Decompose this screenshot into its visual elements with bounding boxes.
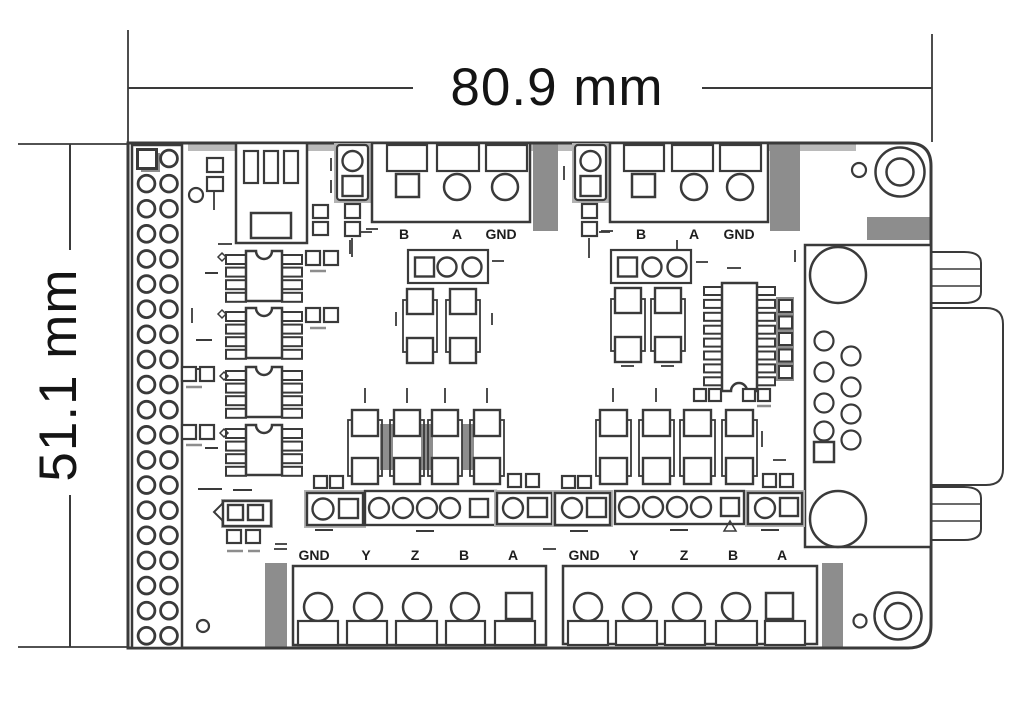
label-b: B: [636, 226, 646, 242]
height-dimension-label: 51.1 mm: [29, 268, 88, 481]
label-y: Y: [629, 547, 639, 563]
db9-shell-protrusion: [931, 252, 1003, 540]
label-gnd: GND: [485, 226, 516, 242]
width-dimension: 80.9 mm: [128, 30, 932, 142]
label-b: B: [459, 547, 469, 563]
label-b: B: [399, 226, 409, 242]
label-gnd: GND: [723, 226, 754, 242]
label-a: A: [689, 226, 699, 242]
width-dimension-label: 80.9 mm: [450, 58, 663, 117]
label-z: Z: [411, 547, 420, 563]
usb-b-connector: [236, 143, 307, 243]
label-gnd: GND: [298, 547, 329, 563]
pcb-dimension-diagram: B A GND B A GND: [0, 0, 1027, 726]
bottom-pin-headers: [304, 490, 805, 531]
pcb-drawing: B A GND B A GND: [0, 0, 1027, 726]
label-z: Z: [680, 547, 689, 563]
label-b: B: [728, 547, 738, 563]
height-dimension: 51.1 mm: [18, 144, 127, 647]
label-gnd: GND: [568, 547, 599, 563]
label-a: A: [508, 547, 518, 563]
label-a: A: [777, 547, 787, 563]
label-a: A: [452, 226, 462, 242]
db9-connector: [805, 245, 931, 547]
label-y: Y: [361, 547, 371, 563]
pin-header-2x20: [132, 145, 182, 648]
